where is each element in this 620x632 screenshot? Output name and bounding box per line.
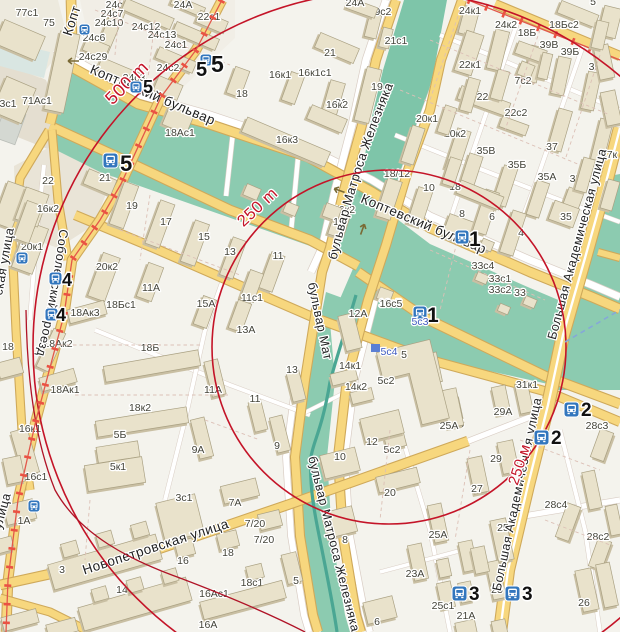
svg-text:25с1: 25с1 (432, 600, 455, 612)
svg-text:5: 5 (401, 349, 407, 361)
svg-text:5: 5 (120, 151, 132, 176)
svg-text:24с10: 24с10 (95, 17, 124, 29)
svg-text:13: 13 (286, 364, 298, 376)
svg-text:18Б: 18Б (518, 27, 537, 39)
svg-text:3с1: 3с1 (176, 492, 193, 504)
svg-text:11: 11 (250, 393, 261, 405)
svg-text:5: 5 (293, 575, 299, 587)
svg-text:10: 10 (423, 182, 435, 194)
svg-text:3: 3 (522, 584, 533, 605)
svg-text:33с2: 33с2 (489, 284, 512, 296)
svg-text:22: 22 (42, 175, 54, 187)
svg-text:20к1: 20к1 (416, 113, 438, 125)
svg-text:21с1: 21с1 (385, 35, 408, 47)
svg-text:5с3: 5с3 (412, 316, 429, 328)
svg-text:5с4: 5с4 (381, 346, 398, 358)
svg-text:24к1: 24к1 (459, 5, 481, 17)
svg-text:24к2: 24к2 (495, 19, 517, 31)
svg-text:21: 21 (324, 47, 336, 59)
svg-text:8: 8 (342, 534, 348, 546)
svg-text:26: 26 (578, 597, 590, 609)
svg-text:71Ас1: 71Ас1 (22, 95, 52, 107)
svg-text:18: 18 (222, 547, 234, 559)
svg-text:5: 5 (196, 59, 207, 81)
svg-text:14к1: 14к1 (339, 360, 361, 372)
svg-text:7/20: 7/20 (245, 518, 266, 530)
svg-text:7А: 7А (229, 497, 242, 509)
svg-text:18Ак3: 18Ак3 (70, 307, 99, 319)
svg-text:35Б: 35Б (508, 159, 527, 171)
svg-text:35А: 35А (538, 171, 557, 183)
svg-text:35: 35 (560, 211, 572, 223)
svg-text:24с1: 24с1 (165, 39, 188, 51)
svg-text:20: 20 (384, 487, 396, 499)
svg-text:1: 1 (469, 228, 481, 251)
svg-text:39Б: 39Б (561, 46, 580, 58)
svg-text:3: 3 (59, 564, 65, 576)
svg-text:5: 5 (590, 0, 596, 8)
svg-text:27: 27 (471, 483, 483, 495)
svg-text:18Б: 18Б (141, 342, 160, 354)
svg-text:9А: 9А (192, 444, 205, 456)
svg-text:28с3: 28с3 (586, 420, 609, 432)
svg-text:1: 1 (427, 304, 439, 327)
svg-text:16с5: 16с5 (380, 298, 403, 310)
svg-text:13А: 13А (237, 324, 256, 336)
svg-text:16: 16 (177, 555, 189, 567)
svg-text:16к3: 16к3 (276, 134, 298, 146)
svg-text:24А: 24А (346, 0, 365, 9)
svg-text:24А: 24А (174, 0, 193, 11)
svg-text:20к2: 20к2 (96, 261, 118, 273)
svg-text:8: 8 (459, 208, 465, 220)
svg-text:12А: 12А (349, 308, 368, 320)
svg-text:5к1: 5к1 (110, 461, 126, 473)
svg-text:5с2: 5с2 (378, 375, 395, 387)
svg-text:31к1: 31к1 (516, 379, 538, 391)
svg-text:1А: 1А (18, 515, 31, 527)
svg-text:75: 75 (43, 17, 55, 29)
svg-text:18Ас1: 18Ас1 (165, 127, 195, 139)
svg-text:5: 5 (143, 77, 153, 97)
svg-text:2: 2 (581, 400, 592, 421)
svg-text:5: 5 (211, 51, 224, 77)
svg-text:18: 18 (2, 341, 14, 353)
svg-text:5с2: 5с2 (384, 444, 401, 456)
svg-text:23А: 23А (406, 568, 425, 580)
svg-text:18Бс2: 18Бс2 (549, 19, 579, 31)
svg-text:18Бс1: 18Бс1 (106, 299, 136, 311)
svg-text:13: 13 (224, 246, 236, 258)
svg-text:5Б: 5Б (114, 429, 127, 441)
svg-text:22с1: 22с1 (198, 11, 221, 23)
svg-text:18к2: 18к2 (129, 402, 151, 414)
svg-text:15А: 15А (197, 298, 216, 310)
svg-text:77с1: 77с1 (16, 7, 39, 19)
svg-text:16Ас1: 16Ас1 (199, 588, 229, 600)
svg-text:9: 9 (274, 440, 280, 452)
svg-text:29А: 29А (494, 406, 513, 418)
svg-text:11А: 11А (142, 282, 160, 294)
svg-text:7/20: 7/20 (254, 534, 275, 546)
svg-text:18: 18 (236, 88, 248, 100)
svg-text:18Ак1: 18Ак1 (50, 384, 79, 396)
svg-text:16к2: 16к2 (37, 203, 59, 215)
svg-text:16к2: 16к2 (326, 99, 348, 111)
svg-text:17: 17 (160, 216, 172, 228)
svg-text:16А: 16А (199, 619, 218, 631)
svg-text:4: 4 (56, 305, 66, 325)
svg-text:29: 29 (490, 453, 502, 465)
svg-text:3: 3 (469, 584, 480, 605)
svg-text:16к1: 16к1 (269, 69, 291, 81)
svg-text:19: 19 (126, 200, 138, 212)
svg-text:6: 6 (489, 211, 495, 223)
svg-text:16с1: 16с1 (25, 471, 48, 483)
svg-text:16к1с1: 16к1с1 (298, 67, 331, 79)
svg-text:12: 12 (366, 436, 378, 448)
svg-text:4: 4 (62, 270, 72, 290)
svg-text:25А: 25А (429, 529, 448, 541)
svg-text:10: 10 (334, 451, 346, 463)
svg-text:2: 2 (551, 428, 562, 449)
svg-text:11: 11 (273, 250, 284, 262)
svg-text:28с4: 28с4 (545, 499, 568, 511)
svg-text:37: 37 (546, 141, 558, 153)
svg-text:11А: 11А (204, 384, 222, 396)
svg-text:33с4: 33с4 (472, 260, 495, 272)
svg-text:15: 15 (198, 231, 210, 243)
svg-text:21: 21 (99, 172, 111, 184)
svg-text:35В: 35В (477, 145, 496, 157)
svg-text:14к2: 14к2 (345, 381, 367, 393)
svg-text:6: 6 (374, 616, 380, 628)
svg-text:22с2: 22с2 (505, 107, 528, 119)
svg-text:3с1: 3с1 (0, 98, 17, 110)
svg-text:22к1: 22к1 (459, 59, 481, 71)
svg-text:21А: 21А (457, 610, 476, 622)
